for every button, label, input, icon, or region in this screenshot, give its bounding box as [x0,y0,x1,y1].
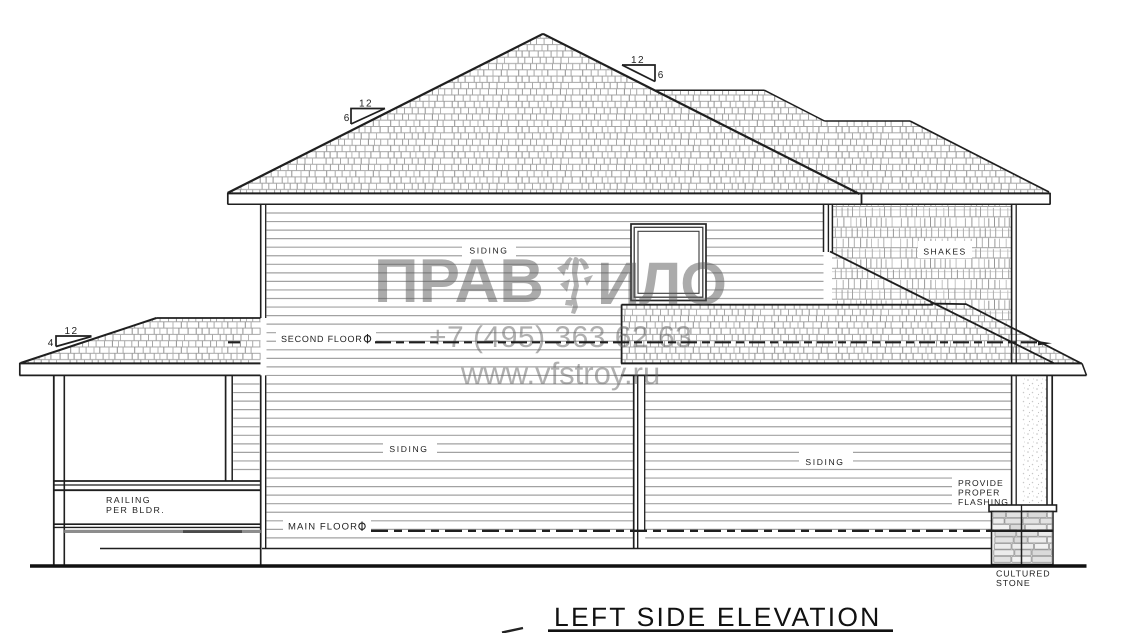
svg-text:FLASHING: FLASHING [958,497,1009,507]
svg-text:6: 6 [344,113,350,124]
svg-text:RAILING: RAILING [106,495,151,505]
svg-text:+7 (495) 363 62 63: +7 (495) 363 62 63 [429,321,692,354]
svg-text:ПРАВ: ПРАВ [374,247,544,316]
svg-text:MAIN FLOOR: MAIN FLOOR [288,522,358,533]
svg-text:SIDING: SIDING [469,246,508,256]
svg-text:12: 12 [64,326,78,337]
svg-text:SIDING: SIDING [805,457,844,467]
svg-text:STONE: STONE [996,578,1031,588]
svg-text:PROPER: PROPER [958,488,1000,498]
svg-text:6: 6 [658,70,664,81]
svg-text:12: 12 [631,55,645,66]
svg-text:ИЛО: ИЛО [597,250,726,317]
svg-text:PER BLDR.: PER BLDR. [106,505,165,515]
svg-text:www.vfstroy.ru: www.vfstroy.ru [460,356,660,391]
svg-text:SECOND FLOOR: SECOND FLOOR [281,334,363,344]
svg-text:CULTURED: CULTURED [996,569,1050,579]
svg-text:LEFT SIDE ELEVATION: LEFT SIDE ELEVATION [554,602,882,632]
svg-text:12: 12 [359,99,373,110]
svg-text:SHAKES: SHAKES [923,247,966,257]
svg-text:SIDING: SIDING [389,444,428,454]
svg-text:PROVIDE: PROVIDE [958,478,1004,488]
svg-text:4: 4 [48,338,54,349]
